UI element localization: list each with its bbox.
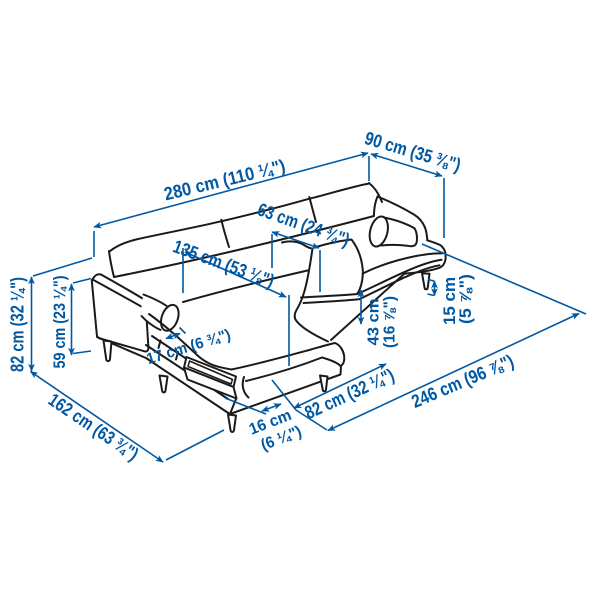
svg-text:90 cm (35 ⅜"): 90 cm (35 ⅜"): [362, 127, 463, 175]
svg-text:82 cm (32 ¼"): 82 cm (32 ¼"): [8, 277, 28, 372]
svg-text:246 cm (96 ⅞"): 246 cm (96 ⅞"): [408, 350, 517, 412]
svg-text:(5 ⅞"): (5 ⅞"): [456, 274, 475, 324]
svg-text:43 cm: 43 cm: [366, 299, 383, 346]
svg-text:(16 ⅞"): (16 ⅞"): [382, 296, 399, 348]
svg-text:82 cm (32 ¼"): 82 cm (32 ¼"): [301, 364, 397, 423]
svg-text:59 cm (23 ¼"): 59 cm (23 ¼"): [50, 276, 69, 369]
svg-text:280 cm (110 ¼"): 280 cm (110 ¼"): [162, 155, 287, 204]
svg-text:162 cm (63 ¾"): 162 cm (63 ¾"): [45, 389, 143, 465]
